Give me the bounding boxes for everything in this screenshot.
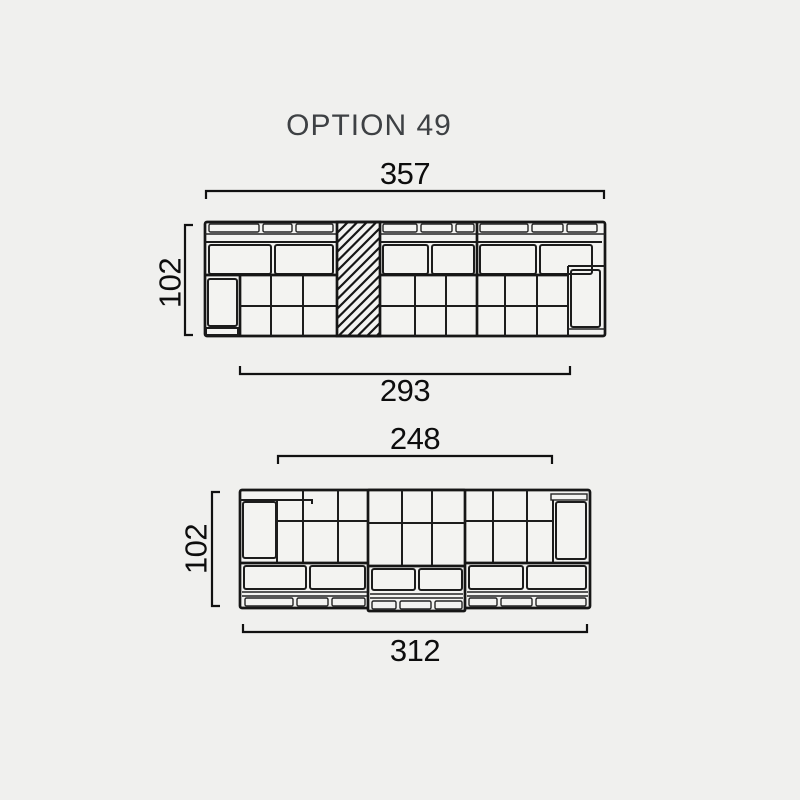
dim-line-bottom-overall-312 — [243, 624, 587, 632]
blueprint-canvas: OPTION 49 — [0, 0, 800, 800]
dim-label-top-depth: 102 — [155, 258, 186, 308]
dim-label-bottom-depth: 102 — [181, 524, 212, 574]
hatched-connector — [337, 222, 380, 336]
dim-line-bottom-seat-248 — [278, 456, 552, 464]
dim-label-bottom-overall-width: 312 — [390, 635, 440, 666]
middle-module — [368, 490, 465, 611]
top-sofa-plan — [205, 222, 605, 336]
bottom-sofa-plan — [240, 490, 590, 611]
dim-label-top-seat-width: 293 — [380, 375, 430, 406]
dim-line-top-overall-357 — [206, 191, 604, 199]
dim-label-bottom-seat-width: 248 — [390, 423, 440, 454]
dim-label-top-overall-width: 357 — [380, 158, 430, 189]
